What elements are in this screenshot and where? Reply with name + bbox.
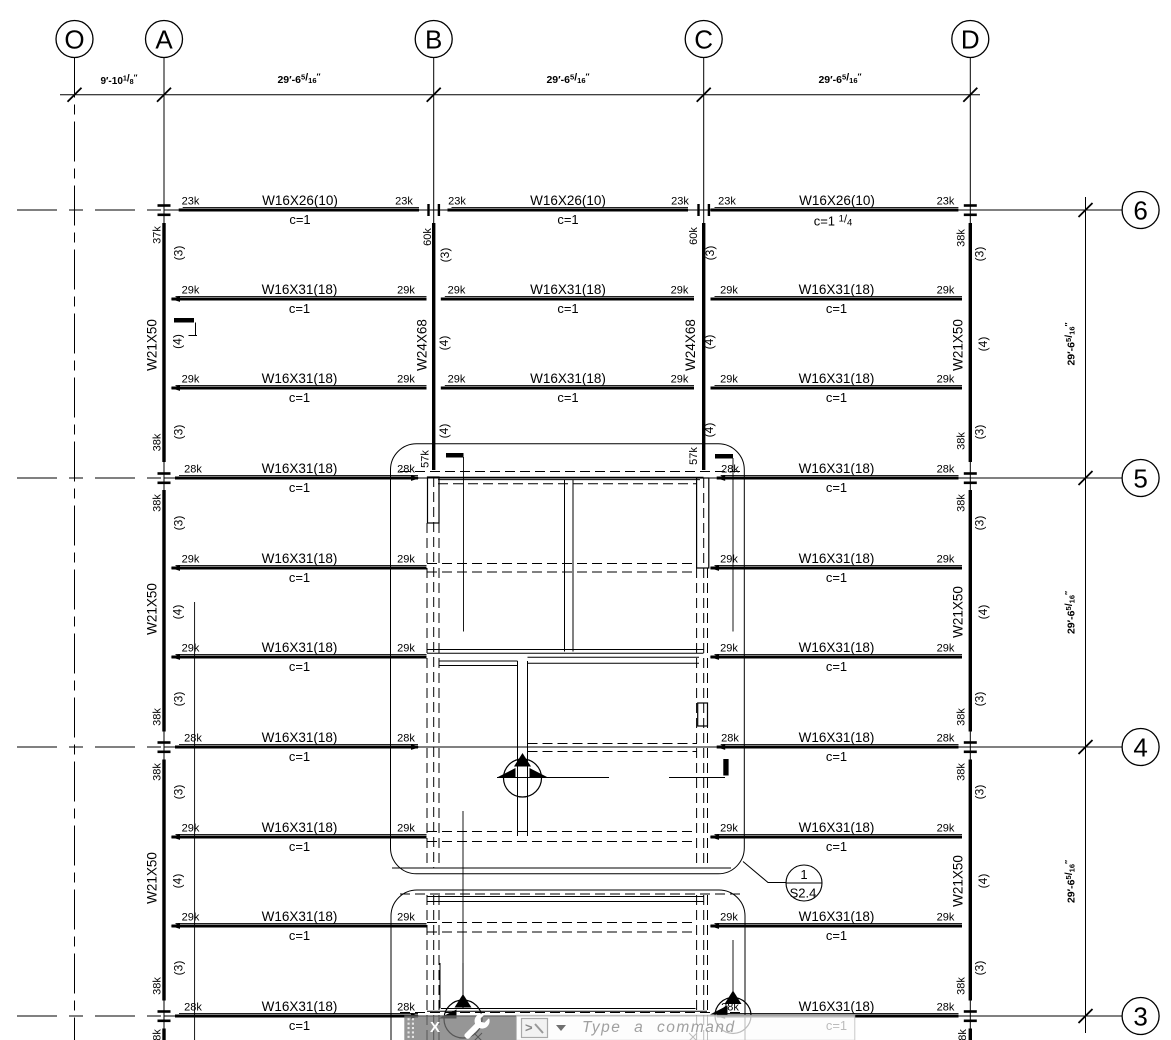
svg-text:c=1: c=1: [826, 301, 847, 316]
svg-text:3: 3: [1133, 1002, 1147, 1032]
svg-text:W16X26(10): W16X26(10): [530, 193, 606, 208]
svg-text:29k: 29k: [720, 823, 738, 835]
svg-text:29k: 29k: [397, 823, 415, 835]
svg-text:29k: 29k: [671, 285, 689, 297]
svg-text:29k: 29k: [937, 643, 955, 655]
svg-text:c=1: c=1: [826, 839, 847, 854]
svg-text:29k: 29k: [720, 374, 738, 386]
svg-text:38k: 38k: [152, 708, 164, 726]
svg-text:(4): (4): [702, 423, 716, 438]
svg-text:W21X50: W21X50: [950, 586, 965, 638]
svg-text:c=1: c=1: [289, 480, 310, 495]
svg-text:c=1: c=1: [289, 390, 310, 405]
svg-text:60k: 60k: [688, 227, 700, 245]
svg-text:(3): (3): [172, 516, 186, 531]
svg-text:29k: 29k: [182, 912, 200, 924]
svg-text:(4): (4): [437, 424, 451, 439]
svg-text:>: >: [525, 1020, 533, 1035]
svg-text:29k: 29k: [937, 374, 955, 386]
svg-text:29k: 29k: [182, 823, 200, 835]
svg-text:(3): (3): [972, 785, 986, 800]
svg-text:6: 6: [1133, 196, 1147, 226]
svg-text:(3): (3): [172, 785, 186, 800]
svg-text:29k: 29k: [937, 285, 955, 297]
svg-text:W21X50: W21X50: [145, 852, 160, 904]
svg-text:28k: 28k: [721, 733, 739, 745]
svg-text:D: D: [961, 25, 980, 55]
svg-text:W16X31(18): W16X31(18): [799, 282, 875, 297]
svg-text:29k: 29k: [720, 285, 738, 297]
svg-text:c=1: c=1: [826, 570, 847, 585]
svg-text:W16X26(10): W16X26(10): [799, 193, 875, 208]
svg-text:W21X50: W21X50: [950, 319, 965, 371]
svg-text:(3): (3): [438, 248, 452, 263]
svg-text:(4): (4): [171, 874, 185, 889]
svg-text:38k: 38k: [955, 763, 967, 781]
svg-text:38k: 38k: [955, 494, 967, 512]
svg-text:W16X31(18): W16X31(18): [799, 640, 875, 655]
svg-text:38k: 38k: [152, 1029, 164, 1040]
svg-text:(4): (4): [171, 334, 185, 349]
svg-text:29k: 29k: [397, 643, 415, 655]
svg-text:c=1: c=1: [826, 749, 847, 764]
svg-text:38k: 38k: [152, 494, 164, 512]
svg-text:29k: 29k: [937, 823, 955, 835]
svg-text:(3): (3): [172, 692, 186, 707]
svg-text:(3): (3): [703, 246, 717, 261]
svg-text:29k: 29k: [937, 554, 955, 566]
svg-text:29k: 29k: [937, 912, 955, 924]
svg-text:38k: 38k: [955, 977, 967, 995]
svg-text:4: 4: [1133, 733, 1147, 763]
svg-text:A: A: [155, 25, 173, 55]
svg-text:c=1: c=1: [826, 659, 847, 674]
svg-text:38k: 38k: [957, 1029, 969, 1040]
svg-text:B: B: [425, 25, 442, 55]
svg-text:28k: 28k: [937, 1002, 955, 1014]
svg-text:23k: 23k: [448, 196, 466, 208]
svg-text:29k: 29k: [720, 554, 738, 566]
svg-text:c=1: c=1: [289, 659, 310, 674]
svg-text:29k: 29k: [397, 285, 415, 297]
svg-text:c=1: c=1: [289, 928, 310, 943]
svg-text:(3): (3): [972, 516, 986, 531]
svg-text:(4): (4): [702, 335, 716, 350]
svg-text:38k: 38k: [955, 229, 967, 247]
svg-text:W16X31(18): W16X31(18): [530, 371, 606, 386]
svg-text:c=1: c=1: [289, 839, 310, 854]
svg-text:(3): (3): [972, 247, 986, 262]
svg-text:Type a command: Type a command: [582, 1019, 736, 1036]
svg-text:W16X31(18): W16X31(18): [262, 282, 338, 297]
svg-text:c=1: c=1: [289, 212, 310, 227]
svg-text:38k: 38k: [152, 977, 164, 995]
svg-text:W16X31(18): W16X31(18): [799, 461, 875, 476]
svg-text:c=1: c=1: [557, 390, 578, 405]
svg-text:(4): (4): [976, 337, 990, 352]
svg-text:23k: 23k: [937, 196, 955, 208]
svg-text:W16X31(18): W16X31(18): [799, 820, 875, 835]
svg-text:38k: 38k: [152, 433, 164, 451]
svg-text:C: C: [694, 25, 713, 55]
svg-text:23k: 23k: [182, 196, 200, 208]
svg-text:28k: 28k: [937, 733, 955, 745]
svg-text:(3): (3): [972, 425, 986, 440]
svg-text:c=1: c=1: [289, 301, 310, 316]
svg-text:O: O: [64, 25, 84, 55]
svg-text:c=1: c=1: [289, 1018, 310, 1033]
svg-text:38k: 38k: [955, 708, 967, 726]
svg-text:S2.4: S2.4: [790, 886, 817, 901]
svg-text:38k: 38k: [152, 763, 164, 781]
svg-text:W16X31(18): W16X31(18): [262, 371, 338, 386]
svg-text:c=1: c=1: [289, 570, 310, 585]
svg-text:c=1: c=1: [557, 212, 578, 227]
svg-text:(4): (4): [976, 874, 990, 889]
svg-text:29k: 29k: [720, 912, 738, 924]
svg-text:W24X68: W24X68: [415, 319, 430, 371]
svg-text:29k: 29k: [182, 643, 200, 655]
svg-text:(4): (4): [171, 605, 185, 620]
svg-text:X: X: [430, 1019, 440, 1036]
svg-text:(3): (3): [172, 425, 186, 440]
svg-text:57k: 57k: [688, 447, 700, 465]
svg-text:W21X50: W21X50: [145, 319, 160, 371]
svg-text:W16X31(18): W16X31(18): [799, 909, 875, 924]
svg-text:23k: 23k: [395, 196, 413, 208]
svg-text:(4): (4): [976, 605, 990, 620]
svg-text:W16X31(18): W16X31(18): [262, 909, 338, 924]
svg-text:W16X31(18): W16X31(18): [799, 371, 875, 386]
svg-text:W21X50: W21X50: [950, 855, 965, 907]
svg-text:c=1: c=1: [557, 301, 578, 316]
svg-text:29k: 29k: [397, 912, 415, 924]
svg-text:38k: 38k: [955, 432, 967, 450]
svg-text:29k: 29k: [448, 285, 466, 297]
svg-text:(3): (3): [172, 246, 186, 261]
svg-text:W16X31(18): W16X31(18): [262, 461, 338, 476]
svg-text:W16X31(18): W16X31(18): [262, 999, 338, 1014]
svg-text:W16X26(10): W16X26(10): [262, 193, 338, 208]
svg-text:c=1: c=1: [826, 390, 847, 405]
svg-text:(4): (4): [437, 336, 451, 351]
svg-text:5: 5: [1133, 464, 1147, 494]
svg-text:29k: 29k: [448, 374, 466, 386]
svg-text:29k: 29k: [720, 643, 738, 655]
svg-text:23k: 23k: [671, 196, 689, 208]
svg-text:29k: 29k: [182, 374, 200, 386]
svg-text:W16X31(18): W16X31(18): [262, 551, 338, 566]
svg-text:W16X31(18): W16X31(18): [799, 999, 875, 1014]
svg-text:(3): (3): [172, 961, 186, 976]
svg-text:W21X50: W21X50: [145, 583, 160, 635]
svg-text:29k: 29k: [182, 554, 200, 566]
svg-text:57k: 57k: [420, 450, 432, 468]
svg-text:28k: 28k: [397, 464, 415, 476]
svg-text:23k: 23k: [718, 196, 736, 208]
svg-text:c=1: c=1: [289, 749, 310, 764]
svg-text:(3): (3): [972, 961, 986, 976]
svg-text:37k: 37k: [152, 226, 164, 244]
svg-text:W16X31(18): W16X31(18): [262, 820, 338, 835]
svg-text:W16X31(18): W16X31(18): [262, 730, 338, 745]
svg-text:60k: 60k: [422, 228, 434, 246]
svg-text:W16X31(18): W16X31(18): [530, 282, 606, 297]
svg-text:28k: 28k: [397, 733, 415, 745]
svg-text:W24X68: W24X68: [683, 319, 698, 371]
svg-text:29k: 29k: [671, 374, 689, 386]
svg-text:c=1: c=1: [826, 928, 847, 943]
svg-text:28k: 28k: [184, 1002, 202, 1014]
svg-text:c=1: c=1: [826, 480, 847, 495]
svg-text:28k: 28k: [721, 464, 739, 476]
svg-text:29k: 29k: [182, 285, 200, 297]
svg-text:W16X31(18): W16X31(18): [262, 640, 338, 655]
svg-text:c=1 1/4: c=1 1/4: [814, 213, 853, 228]
svg-text:28k: 28k: [397, 1002, 415, 1014]
svg-text:28k: 28k: [184, 464, 202, 476]
svg-text:28k: 28k: [937, 464, 955, 476]
svg-text:29k: 29k: [397, 374, 415, 386]
svg-text:W16X31(18): W16X31(18): [799, 730, 875, 745]
svg-text:29k: 29k: [397, 554, 415, 566]
svg-text:1: 1: [800, 867, 807, 882]
svg-text:28k: 28k: [184, 733, 202, 745]
svg-text:W16X31(18): W16X31(18): [799, 551, 875, 566]
svg-text:(3): (3): [972, 692, 986, 707]
